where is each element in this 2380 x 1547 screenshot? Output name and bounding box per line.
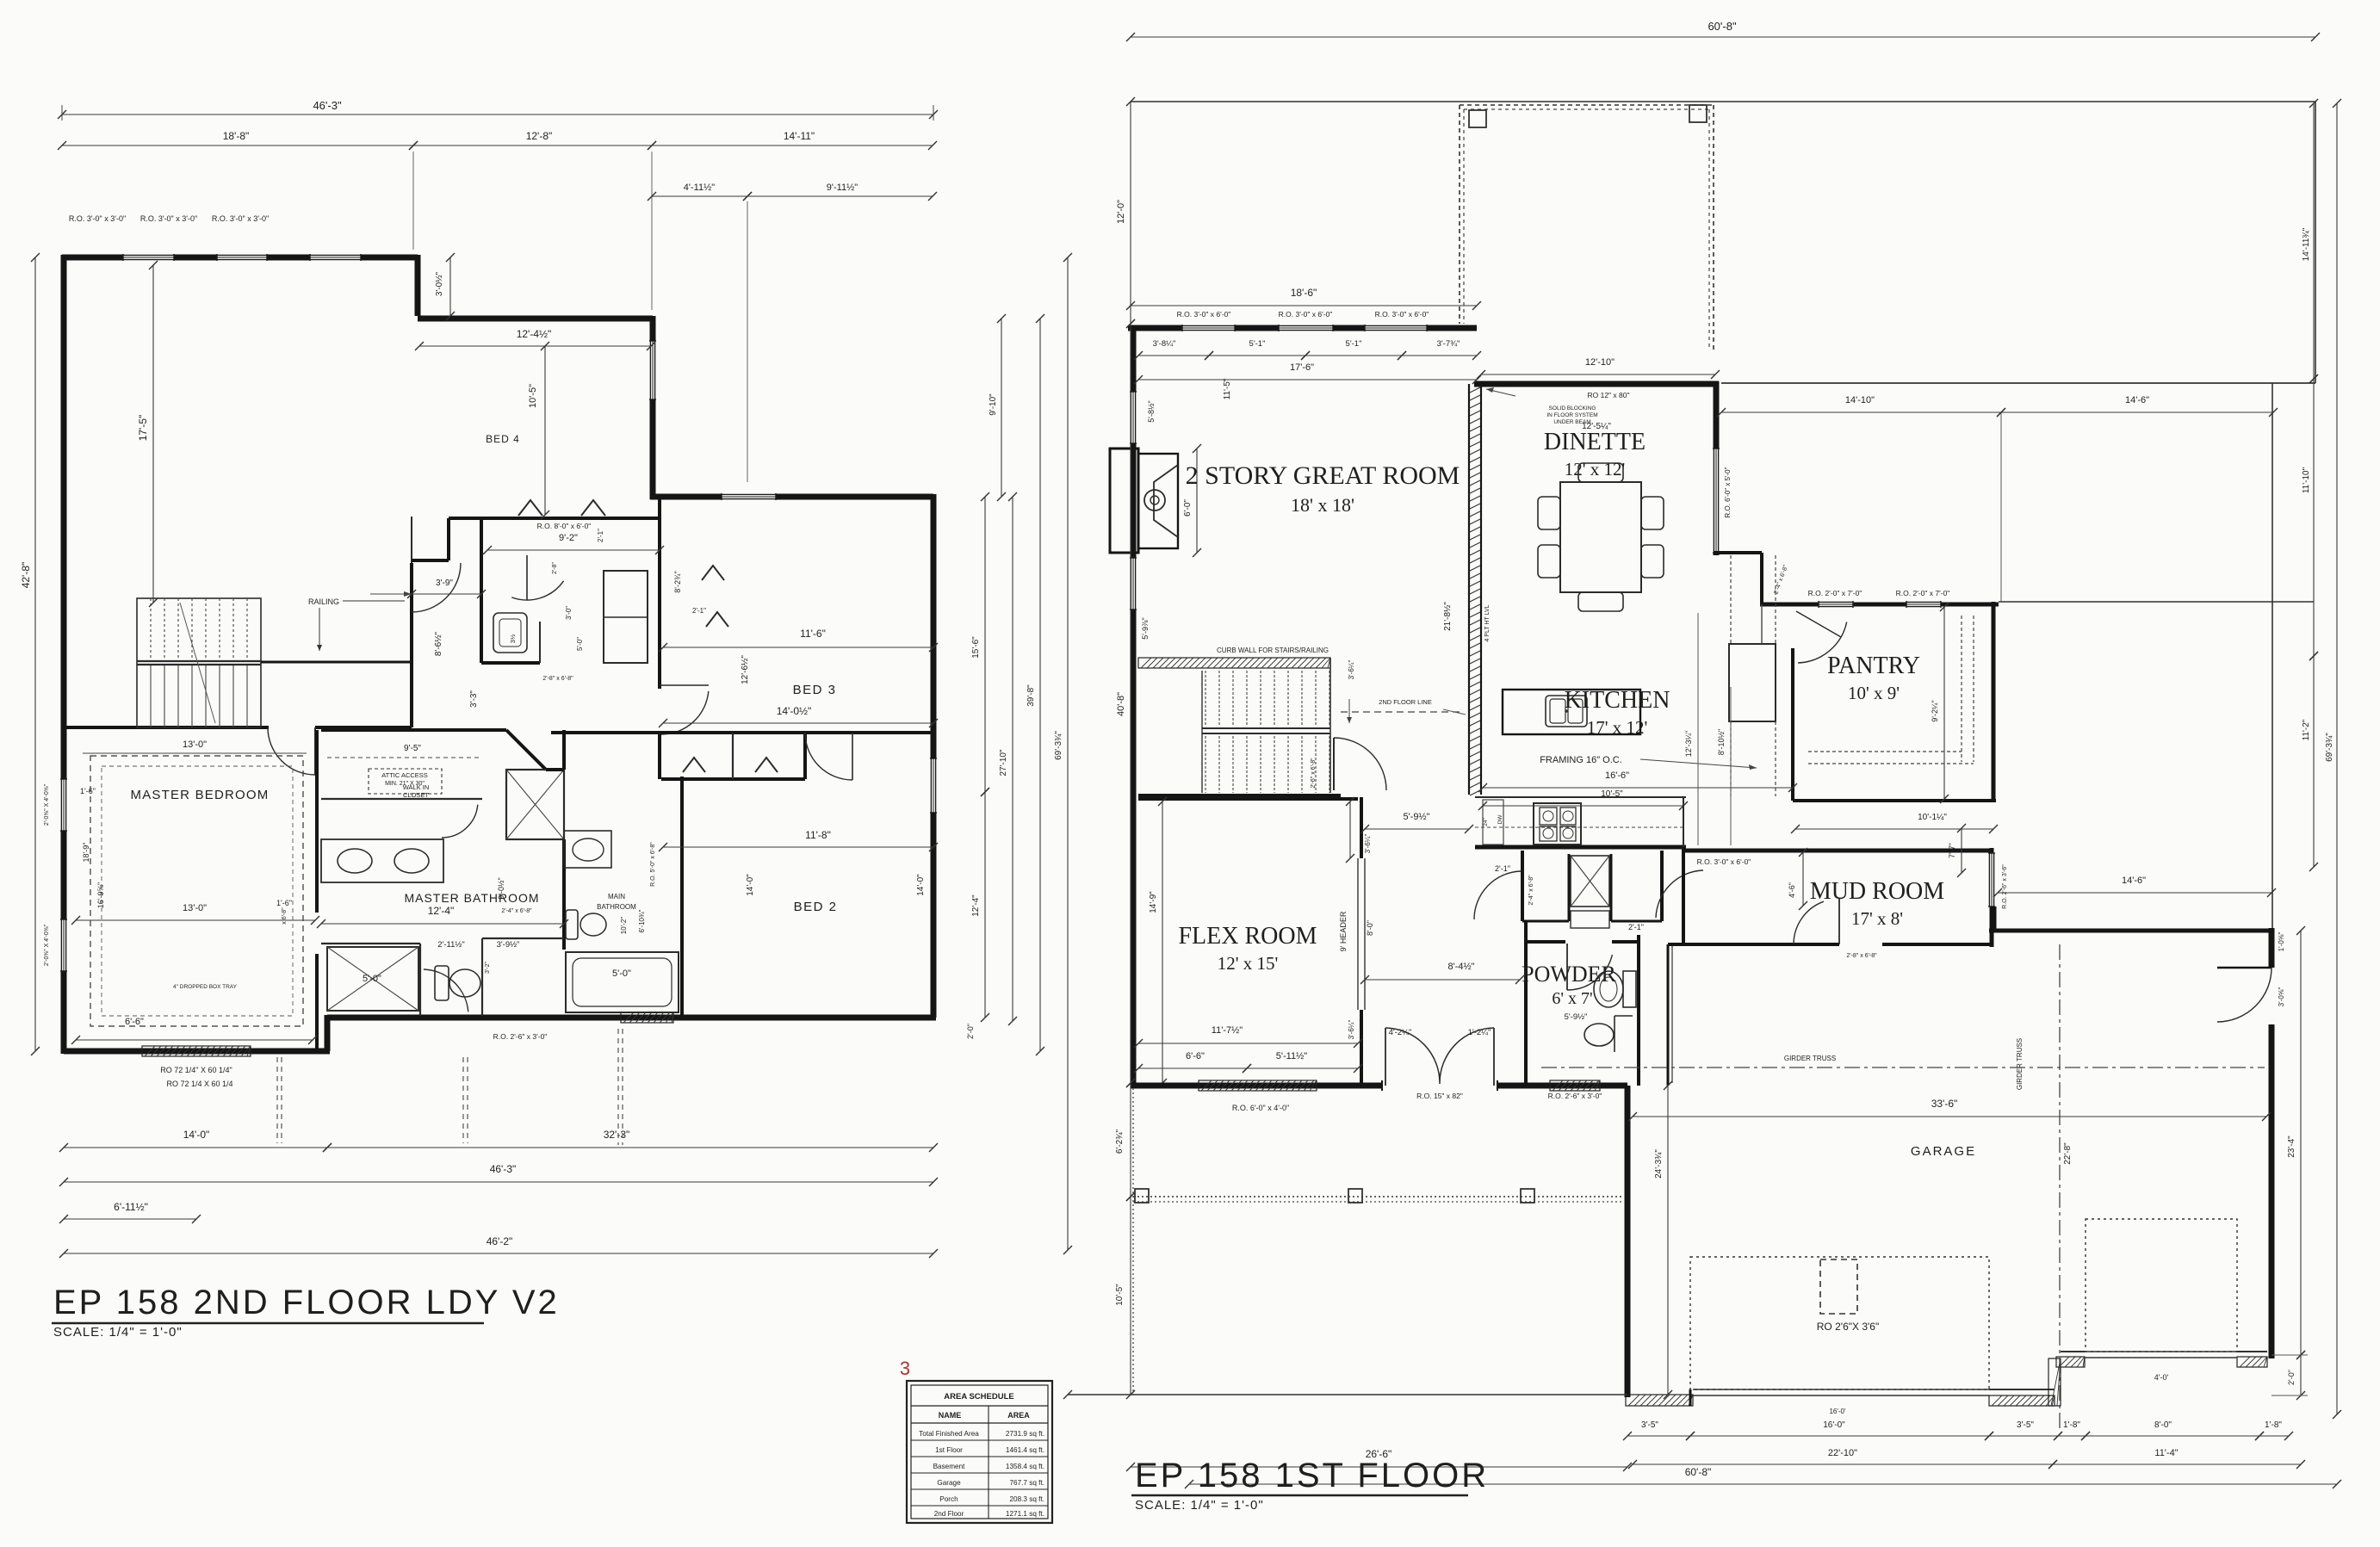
svg-text:4'-11½": 4'-11½" bbox=[684, 183, 715, 193]
svg-text:RO 72 1/4" X 60 1/4": RO 72 1/4" X 60 1/4" bbox=[160, 1066, 232, 1074]
svg-text:12'-3¼": 12'-3¼" bbox=[1684, 731, 1693, 757]
svg-text:3'-9": 3'-9" bbox=[436, 579, 453, 588]
svg-text:208.3 sq ft.: 208.3 sq ft. bbox=[1009, 1495, 1044, 1503]
svg-text:3: 3 bbox=[900, 1358, 910, 1379]
svg-text:33'-6": 33'-6" bbox=[1931, 1098, 1958, 1110]
svg-text:3'-8¼": 3'-8¼" bbox=[1153, 339, 1176, 349]
svg-text:46'-3": 46'-3" bbox=[313, 99, 342, 112]
svg-text:12'-4": 12'-4" bbox=[971, 894, 981, 917]
svg-text:MAIN: MAIN bbox=[608, 893, 625, 900]
svg-text:17' x 12': 17' x 12' bbox=[1587, 717, 1648, 738]
svg-text:MUD ROOM: MUD ROOM bbox=[1810, 878, 1944, 905]
svg-text:12' x 15': 12' x 15' bbox=[1218, 953, 1279, 974]
svg-text:1st Floor: 1st Floor bbox=[935, 1446, 963, 1454]
svg-text:32'-3": 32'-3" bbox=[604, 1129, 630, 1141]
svg-text:40'-8": 40'-8" bbox=[1116, 692, 1126, 716]
svg-text:5'-1": 5'-1" bbox=[1346, 339, 1362, 349]
svg-text:RO 72 1/4 X 60 1/4: RO 72 1/4 X 60 1/4 bbox=[166, 1080, 232, 1088]
svg-text:12'-8": 12'-8" bbox=[526, 130, 553, 142]
svg-text:PANTRY: PANTRY bbox=[1827, 653, 1920, 679]
svg-text:ATTIC ACCESS: ATTIC ACCESS bbox=[381, 771, 428, 779]
svg-text:Basement: Basement bbox=[933, 1463, 966, 1470]
svg-text:3'-0½": 3'-0½" bbox=[435, 271, 444, 296]
svg-text:CLOSET: CLOSET bbox=[403, 791, 429, 799]
svg-text:3'-0⅝": 3'-0⅝" bbox=[2278, 987, 2285, 1007]
svg-text:69'-3¾": 69'-3¾" bbox=[2325, 733, 2334, 762]
svg-text:17'-6": 17'-6" bbox=[1290, 362, 1314, 373]
svg-text:R.O. 3'-0" x 3'-0": R.O. 3'-0" x 3'-0" bbox=[140, 214, 197, 223]
svg-text:6' x 7': 6' x 7' bbox=[1552, 989, 1592, 1008]
svg-text:4" DROPPED BOX TRAY: 4" DROPPED BOX TRAY bbox=[173, 984, 238, 990]
svg-text:6'-6": 6'-6" bbox=[1186, 1051, 1205, 1061]
svg-text:16'-9⅝": 16'-9⅝" bbox=[96, 882, 105, 908]
svg-text:1'-6": 1'-6" bbox=[80, 787, 96, 795]
svg-text:RO 2'6"X 3'6": RO 2'6"X 3'6" bbox=[1817, 1321, 1879, 1333]
svg-text:8'-4½": 8'-4½" bbox=[1447, 962, 1474, 972]
svg-text:3'-6¼": 3'-6¼" bbox=[1364, 834, 1372, 854]
svg-text:2'-8": 2'-8" bbox=[552, 562, 558, 574]
svg-text:16'-6": 16'-6" bbox=[1605, 770, 1629, 781]
svg-text:5'-9⅞": 5'-9⅞" bbox=[1141, 617, 1150, 639]
svg-text:42'-8": 42'-8" bbox=[20, 562, 32, 589]
svg-text:12'-0": 12'-0" bbox=[1116, 200, 1126, 224]
svg-text:1358.4 sq ft.: 1358.4 sq ft. bbox=[1006, 1463, 1044, 1470]
svg-text:NAME: NAME bbox=[939, 1411, 962, 1420]
svg-text:POWDER: POWDER bbox=[1522, 962, 1616, 987]
svg-text:WALK IN: WALK IN bbox=[403, 783, 430, 791]
svg-text:14'-0": 14'-0" bbox=[746, 874, 755, 896]
svg-text:46'-3": 46'-3" bbox=[490, 1163, 517, 1175]
svg-text:16'-0": 16'-0" bbox=[1823, 1420, 1845, 1430]
svg-text:6'-11½": 6'-11½" bbox=[114, 1201, 148, 1213]
svg-text:14'-10": 14'-10" bbox=[1845, 395, 1875, 405]
svg-text:RAILING: RAILING bbox=[308, 597, 339, 606]
svg-text:2'-4" x 6'-8": 2'-4" x 6'-8" bbox=[501, 908, 532, 914]
svg-text:R.O. 15" x 82": R.O. 15" x 82" bbox=[1416, 1092, 1463, 1100]
svg-text:46'-2": 46'-2" bbox=[487, 1235, 513, 1247]
svg-text:EP 158 2ND FLOOR LDY V2: EP 158 2ND FLOOR LDY V2 bbox=[53, 1284, 560, 1321]
svg-text:8'-0": 8'-0" bbox=[1366, 920, 1374, 936]
svg-text:2'-8" x 6'-8": 2'-8" x 6'-8" bbox=[1846, 953, 1877, 959]
svg-text:18' x 18': 18' x 18' bbox=[1291, 494, 1354, 516]
svg-text:Porch: Porch bbox=[939, 1495, 958, 1503]
svg-text:17' x 8': 17' x 8' bbox=[1851, 908, 1903, 929]
svg-text:DW: DW bbox=[1497, 814, 1503, 825]
svg-text:1'-0⅝": 1'-0⅝" bbox=[2278, 932, 2285, 952]
svg-text:10'-2": 10'-2" bbox=[620, 917, 628, 935]
svg-text:BED 2: BED 2 bbox=[794, 900, 838, 914]
svg-text:EP 158 1ST FLOOR: EP 158 1ST FLOOR bbox=[1135, 1457, 1489, 1494]
svg-text:8'-6½": 8'-6½" bbox=[434, 631, 443, 656]
svg-text:2 STORY GREAT ROOM: 2 STORY GREAT ROOM bbox=[1186, 461, 1460, 490]
svg-text:6'-0": 6'-0" bbox=[1183, 499, 1193, 517]
svg-text:4'-6": 4'-6" bbox=[1788, 882, 1796, 898]
svg-text:7'-7": 7'-7" bbox=[1948, 843, 1956, 858]
svg-text:14'-0": 14'-0" bbox=[183, 1129, 210, 1141]
svg-text:10'-5": 10'-5" bbox=[1115, 1284, 1125, 1306]
svg-text:2'-1": 2'-1" bbox=[597, 529, 604, 542]
svg-text:R.O. 3'-0" x 3'-0": R.O. 3'-0" x 3'-0" bbox=[69, 214, 126, 223]
svg-text:22'-10": 22'-10" bbox=[1828, 1448, 1857, 1458]
svg-text:15'-6": 15'-6" bbox=[971, 636, 981, 659]
svg-text:BED 3: BED 3 bbox=[793, 683, 837, 697]
svg-text:SCALE: 1/4" = 1'-0": SCALE: 1/4" = 1'-0" bbox=[1135, 1498, 1264, 1513]
svg-text:SCALE: 1/4" = 1'-0": SCALE: 1/4" = 1'-0" bbox=[53, 1325, 183, 1340]
svg-text:4 PLT HT LVL: 4 PLT HT LVL bbox=[1484, 604, 1491, 641]
svg-text:R.O. 5'-0" x 6'-8": R.O. 5'-0" x 6'-8" bbox=[650, 842, 656, 887]
svg-text:1'-8": 1'-8" bbox=[2265, 1420, 2282, 1430]
svg-text:11'-5": 11'-5" bbox=[1223, 378, 1232, 399]
svg-text:5'-0": 5'-0" bbox=[576, 637, 584, 651]
svg-text:8'-0": 8'-0" bbox=[2154, 1420, 2172, 1430]
svg-text:GARAGE: GARAGE bbox=[1911, 1144, 1976, 1159]
svg-text:12'-6½": 12'-6½" bbox=[741, 655, 750, 684]
svg-text:12'-10": 12'-10" bbox=[1585, 357, 1615, 368]
svg-text:3'-6¼": 3'-6¼" bbox=[1348, 660, 1355, 680]
svg-text:R.O. 3'-0" x 6'-0": R.O. 3'-0" x 6'-0" bbox=[1697, 857, 1751, 866]
svg-text:KITCHEN: KITCHEN bbox=[1565, 687, 1670, 714]
svg-text:R.O. 3'-0" x 6'-0": R.O. 3'-0" x 6'-0" bbox=[1375, 310, 1429, 319]
svg-text:3½: 3½ bbox=[509, 634, 517, 643]
svg-text:12'-4": 12'-4" bbox=[428, 905, 455, 917]
svg-text:R.O. 3'-0" x 6'-0": R.O. 3'-0" x 6'-0" bbox=[1177, 310, 1231, 319]
svg-text:3'-0": 3'-0" bbox=[565, 606, 573, 620]
svg-text:14'-0": 14'-0" bbox=[916, 874, 926, 896]
svg-text:2ND FLOOR LINE: 2ND FLOOR LINE bbox=[1379, 698, 1432, 706]
svg-text:16'-0': 16'-0' bbox=[1829, 1408, 1846, 1415]
svg-text:5'-11½": 5'-11½" bbox=[1276, 1051, 1307, 1061]
svg-text:FLEX ROOM: FLEX ROOM bbox=[1178, 923, 1317, 950]
svg-text:27'-10": 27'-10" bbox=[999, 749, 1008, 776]
svg-text:39'-8": 39'-8" bbox=[1026, 684, 1036, 707]
svg-text:2'-1": 2'-1" bbox=[692, 607, 706, 615]
svg-text:1'-8": 1'-8" bbox=[2063, 1420, 2080, 1430]
svg-text:10'-5": 10'-5" bbox=[528, 384, 538, 408]
svg-text:12' x 12': 12' x 12' bbox=[1565, 459, 1626, 480]
svg-text:767.7 sq ft.: 767.7 sq ft. bbox=[1009, 1479, 1044, 1487]
svg-text:2'-1": 2'-1" bbox=[1495, 864, 1510, 873]
svg-text:14'-6": 14'-6" bbox=[2122, 876, 2146, 886]
svg-text:GIRDER TRUSS: GIRDER TRUSS bbox=[2016, 1038, 2024, 1090]
svg-text:Total Finished Area: Total Finished Area bbox=[919, 1430, 979, 1438]
svg-text:3'-9½": 3'-9½" bbox=[497, 940, 520, 950]
svg-text:3'-3": 3'-3" bbox=[469, 690, 479, 708]
svg-text:5'-9½": 5'-9½" bbox=[1403, 812, 1429, 822]
svg-text:14'-11": 14'-11" bbox=[784, 130, 815, 142]
svg-text:MASTER BATHROOM: MASTER BATHROOM bbox=[404, 891, 539, 905]
svg-text:9'-2": 9'-2" bbox=[559, 533, 578, 543]
svg-text:11'-6": 11'-6" bbox=[800, 628, 826, 640]
svg-text:23'-4": 23'-4" bbox=[2287, 1135, 2296, 1158]
svg-text:8'-10½": 8'-10½" bbox=[1717, 729, 1726, 755]
svg-text:18'-6": 18'-6" bbox=[1291, 287, 1317, 299]
svg-text:3'-2": 3'-2" bbox=[485, 962, 491, 974]
svg-text:11'-10": 11'-10" bbox=[2302, 467, 2311, 493]
svg-text:5'-0": 5'-0" bbox=[363, 974, 381, 984]
svg-text:14'-9": 14'-9" bbox=[1149, 891, 1158, 913]
svg-text:5'-1": 5'-1" bbox=[1249, 339, 1266, 349]
svg-text:11'-7½": 11'-7½" bbox=[1212, 1025, 1243, 1036]
svg-text:RO 12" x 80": RO 12" x 80" bbox=[1587, 391, 1629, 399]
svg-text:9'-2¼": 9'-2¼" bbox=[1931, 700, 1939, 721]
svg-text:FRAMING 16" O.C.: FRAMING 16" O.C. bbox=[1540, 755, 1622, 765]
svg-text:60'-8": 60'-8" bbox=[1708, 20, 1737, 33]
svg-text:9'-11½": 9'-11½" bbox=[827, 183, 858, 193]
svg-text:10' x 9': 10' x 9' bbox=[1848, 683, 1900, 703]
svg-text:12'-4½": 12'-4½" bbox=[517, 328, 552, 340]
svg-text:AREA SCHEDULE: AREA SCHEDULE bbox=[944, 1392, 1013, 1402]
svg-text:5'-0": 5'-0" bbox=[612, 968, 631, 979]
svg-text:1'-6": 1'-6" bbox=[276, 899, 292, 907]
svg-text:2731.9 sq ft.: 2731.9 sq ft. bbox=[1006, 1430, 1044, 1438]
svg-text:R.O. 3'-0" x 3'-0": R.O. 3'-0" x 3'-0" bbox=[212, 214, 269, 223]
svg-text:11'-4": 11'-4" bbox=[2154, 1448, 2178, 1458]
svg-text:R.O. 8'-0" x 6'-0": R.O. 8'-0" x 6'-0" bbox=[537, 522, 592, 530]
svg-text:5'-8½": 5'-8½" bbox=[1147, 400, 1156, 422]
svg-text:18'-9": 18'-9" bbox=[82, 843, 90, 863]
svg-text:BATHROOM: BATHROOM bbox=[597, 903, 636, 911]
svg-text:GIRDER TRUSS: GIRDER TRUSS bbox=[1784, 1055, 1836, 1062]
svg-text:SOLID BLOCKING: SOLID BLOCKING bbox=[1549, 405, 1596, 412]
svg-text:69'-3¾": 69'-3¾" bbox=[1054, 731, 1063, 760]
svg-text:CURB WALL FOR STAIRS/RAILING: CURB WALL FOR STAIRS/RAILING bbox=[1217, 647, 1329, 654]
svg-text:UNDER BEAM: UNDER BEAM bbox=[1553, 419, 1590, 425]
svg-text:2'-0⅝" X 4'-0⅝": 2'-0⅝" X 4'-0⅝" bbox=[44, 924, 50, 966]
svg-text:8'-2¾": 8'-2¾" bbox=[673, 571, 682, 592]
svg-text:6'-2¾": 6'-2¾" bbox=[1115, 1129, 1125, 1154]
svg-text:2'-0": 2'-0" bbox=[966, 1024, 975, 1039]
svg-text:2'-1": 2'-1" bbox=[1628, 923, 1644, 931]
svg-text:24": 24" bbox=[1483, 818, 1489, 826]
svg-text:2'-4" x 6'-8": 2'-4" x 6'-8" bbox=[1528, 875, 1534, 906]
svg-text:2'-6" x 6'-8": 2'-6" x 6'-8" bbox=[1311, 758, 1317, 789]
svg-text:3'-7¾": 3'-7¾" bbox=[1437, 339, 1460, 349]
svg-text:60'-8": 60'-8" bbox=[1685, 1466, 1712, 1478]
svg-text:10'-1¼": 10'-1¼" bbox=[1918, 812, 1947, 822]
svg-text:R.O. 2'-0" x 7'-0": R.O. 2'-0" x 7'-0" bbox=[1808, 589, 1862, 597]
svg-text:x 6'-8": x 6'-8" bbox=[282, 907, 288, 925]
svg-text:6'-10¾": 6'-10¾" bbox=[638, 909, 646, 932]
svg-text:24'-3¾": 24'-3¾" bbox=[1654, 1149, 1664, 1179]
svg-text:18'-8": 18'-8" bbox=[223, 130, 250, 142]
svg-text:14'-0½": 14'-0½" bbox=[777, 705, 812, 717]
svg-text:1461.4 sq ft.: 1461.4 sq ft. bbox=[1006, 1446, 1044, 1454]
svg-text:4'-0': 4'-0' bbox=[2154, 1373, 2169, 1382]
svg-text:22'-8": 22'-8" bbox=[2063, 1142, 2073, 1165]
svg-text:9'-5": 9'-5" bbox=[404, 744, 421, 753]
svg-text:IN FLOOR SYSTEM: IN FLOOR SYSTEM bbox=[1546, 412, 1597, 418]
svg-text:9'-0½": 9'-0½" bbox=[497, 877, 505, 899]
svg-text:2'-0⅝" X 4'-0⅝": 2'-0⅝" X 4'-0⅝" bbox=[44, 783, 50, 826]
svg-text:13'-0": 13'-0" bbox=[183, 903, 207, 913]
svg-text:3'-5": 3'-5" bbox=[2017, 1420, 2034, 1430]
svg-text:13'-0": 13'-0" bbox=[183, 739, 207, 750]
svg-text:Garage: Garage bbox=[937, 1479, 961, 1487]
svg-text:6'-6": 6'-6" bbox=[125, 1017, 144, 1027]
svg-text:3'-6¼": 3'-6¼" bbox=[1348, 1020, 1355, 1040]
svg-text:17'-5": 17'-5" bbox=[137, 415, 149, 442]
svg-text:1271.1 sq ft.: 1271.1 sq ft. bbox=[1006, 1510, 1044, 1518]
svg-text:R.O. 2'-0" x 7'-0": R.O. 2'-0" x 7'-0" bbox=[1896, 589, 1950, 597]
svg-text:9'-10": 9'-10" bbox=[989, 393, 998, 416]
svg-text:2'-0": 2'-0" bbox=[2287, 1370, 2296, 1385]
svg-text:2'-11½": 2'-11½" bbox=[437, 940, 464, 950]
svg-text:2nd Floor: 2nd Floor bbox=[934, 1510, 964, 1518]
svg-text:R.O. 6'-0" x 5'-0": R.O. 6'-0" x 5'-0" bbox=[1724, 467, 1732, 517]
svg-text:2'-8" x 6'-8": 2'-8" x 6'-8" bbox=[542, 676, 573, 682]
svg-text:R.O. 2'-6" x 3'-6": R.O. 2'-6" x 3'-6" bbox=[2002, 864, 2008, 909]
svg-text:5'-9½": 5'-9½" bbox=[1565, 1012, 1588, 1022]
svg-text:R.O. 2'-6" x 3'-0": R.O. 2'-6" x 3'-0" bbox=[1548, 1092, 1602, 1100]
svg-text:R.O. 6'-0" x 4'-0": R.O. 6'-0" x 4'-0" bbox=[1232, 1104, 1289, 1112]
svg-text:3'-5": 3'-5" bbox=[1641, 1420, 1658, 1430]
svg-text:MASTER BEDROOM: MASTER BEDROOM bbox=[131, 788, 270, 802]
svg-text:R.O. 3'-0" x 6'-0": R.O. 3'-0" x 6'-0" bbox=[1279, 310, 1333, 319]
svg-text:21'-8½": 21'-8½" bbox=[1443, 602, 1453, 631]
svg-text:11'-8": 11'-8" bbox=[805, 829, 831, 841]
svg-text:DINETTE: DINETTE bbox=[1544, 429, 1646, 455]
svg-text:BED 4: BED 4 bbox=[486, 433, 520, 445]
svg-text:10'-5": 10'-5" bbox=[1601, 789, 1623, 799]
svg-text:AREA: AREA bbox=[1007, 1411, 1030, 1420]
svg-text:R.O. 2'-6" x 3'-0": R.O. 2'-6" x 3'-0" bbox=[493, 1032, 548, 1041]
svg-text:14'-11¾": 14'-11¾" bbox=[2302, 227, 2311, 261]
svg-text:11'-2": 11'-2" bbox=[2302, 719, 2311, 740]
svg-text:14'-6": 14'-6" bbox=[2125, 395, 2149, 405]
svg-text:9' HEADER: 9' HEADER bbox=[1339, 911, 1348, 951]
